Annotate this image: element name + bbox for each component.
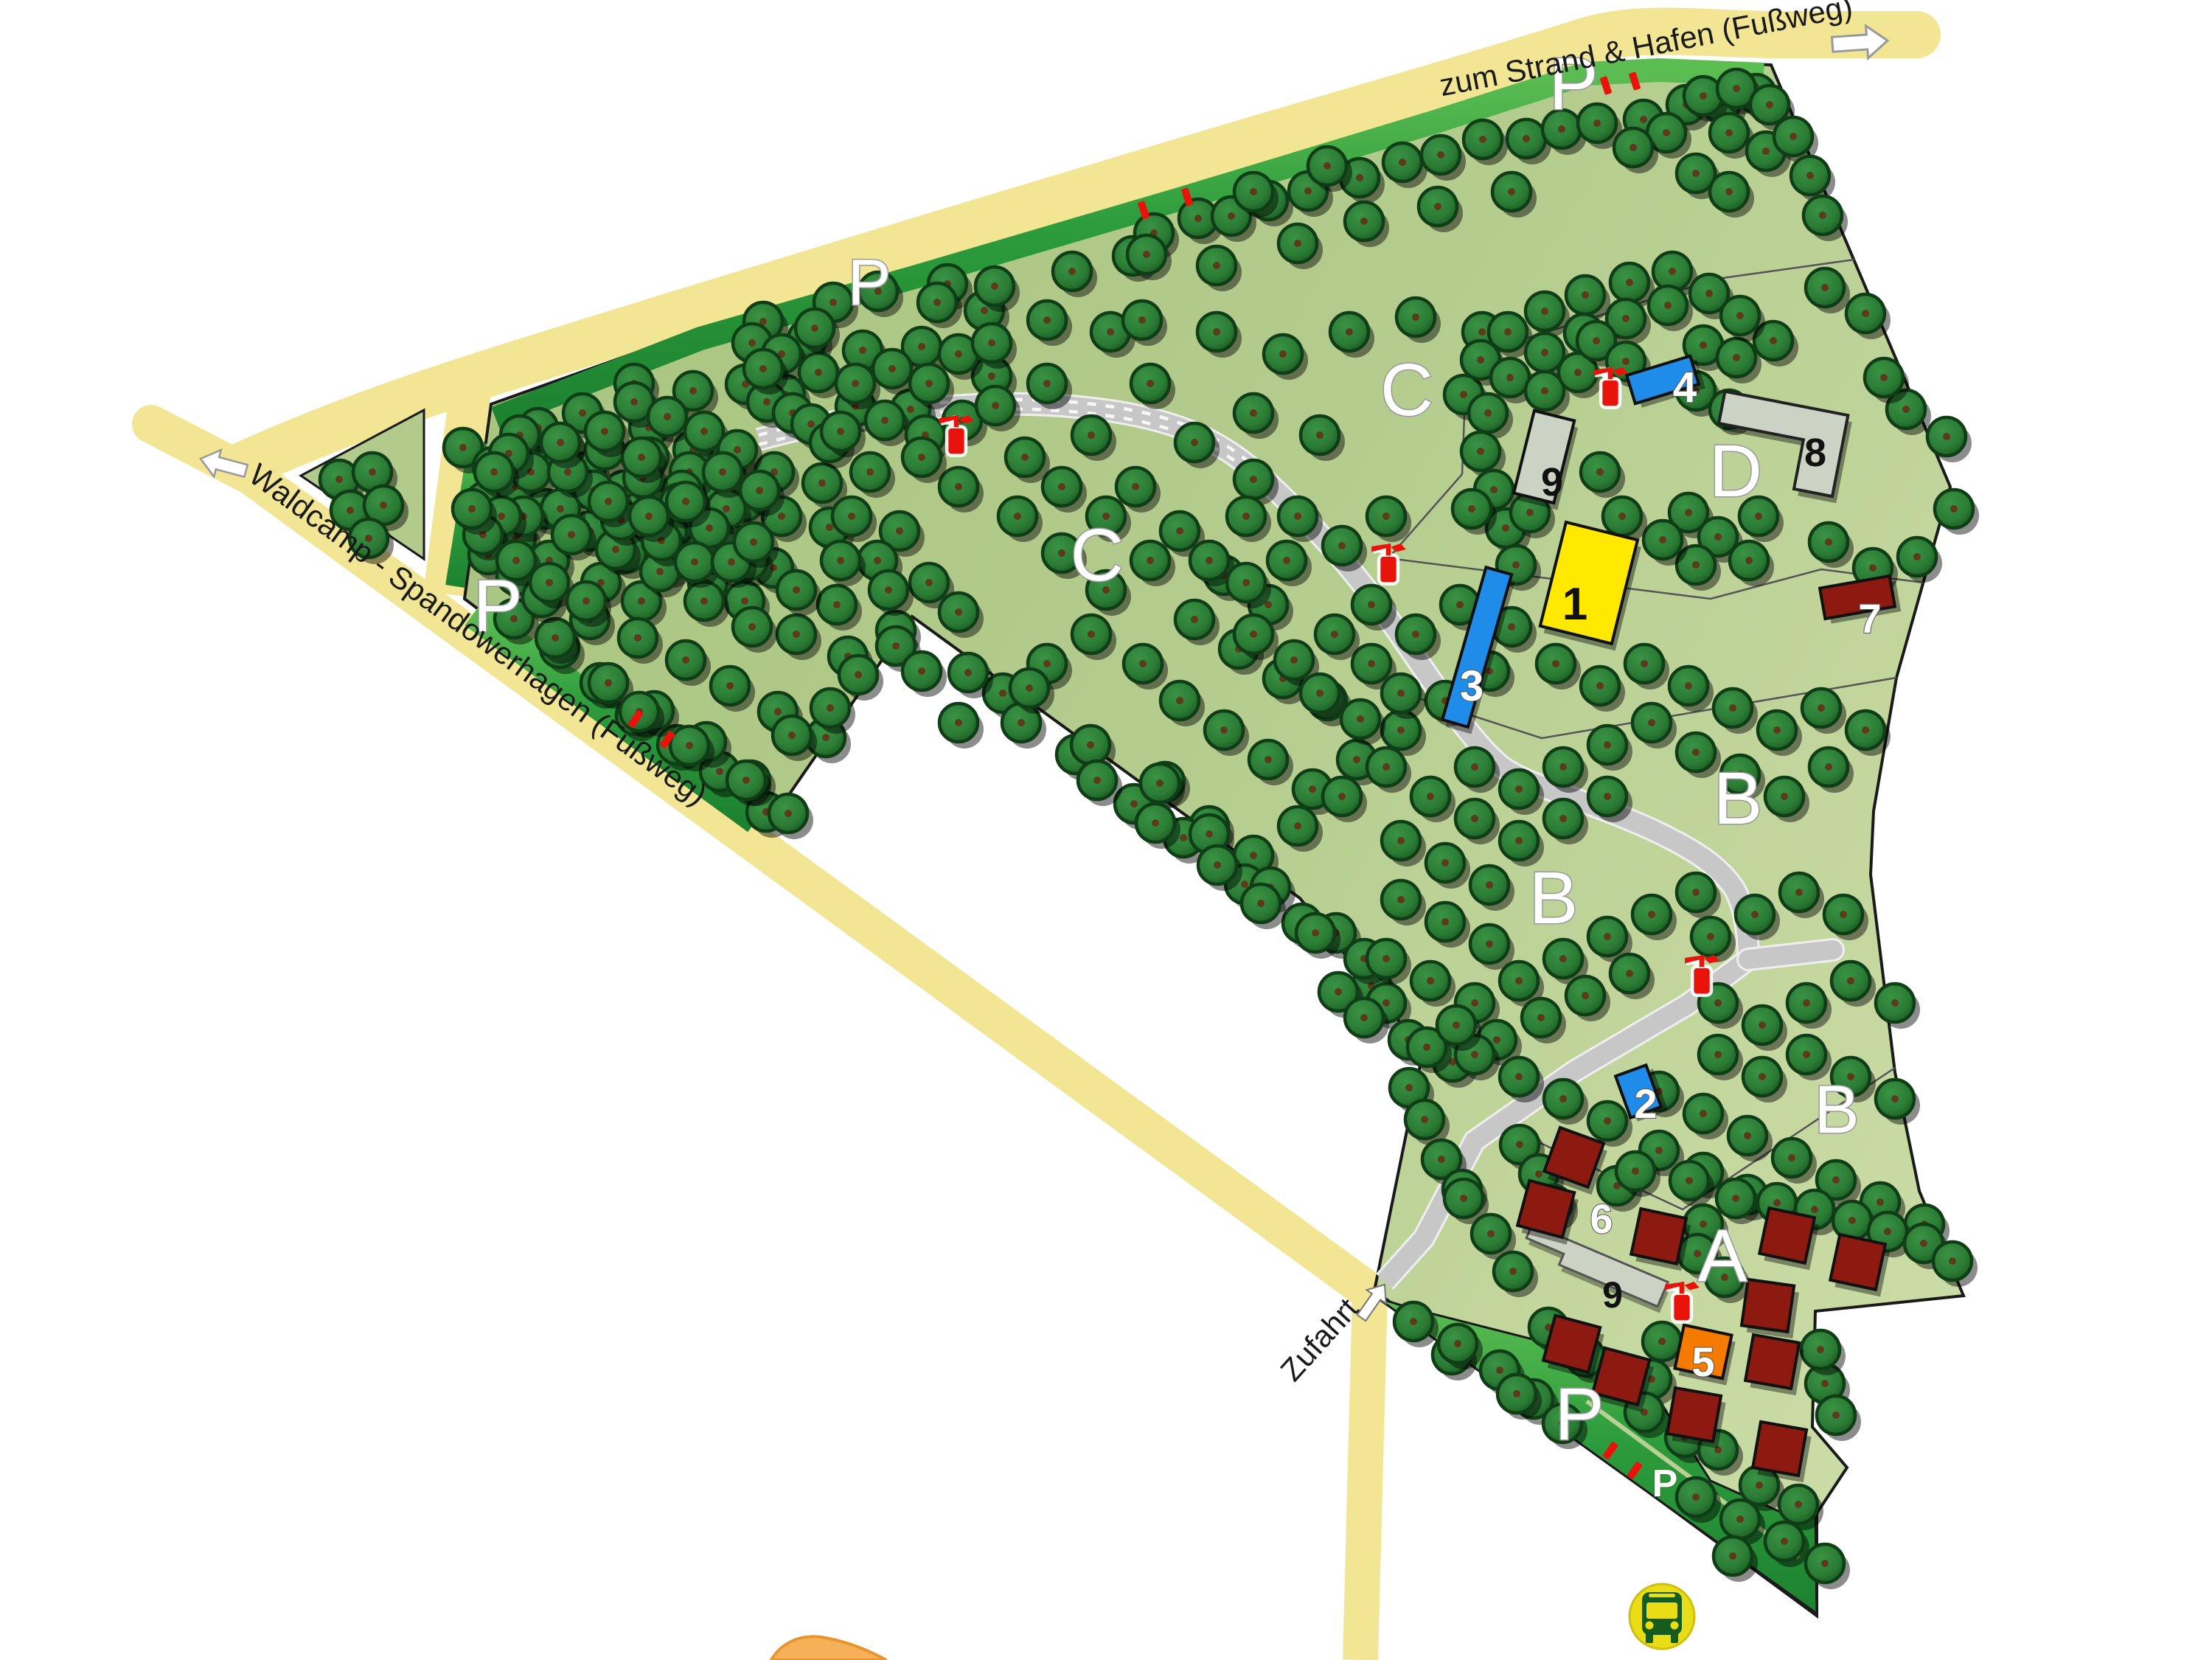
svg-text:A: A [1698,1215,1747,1297]
svg-text:2: 2 [1634,1080,1657,1127]
svg-text:6: 6 [1590,1195,1613,1242]
svg-text:B: B [1529,857,1579,940]
svg-text:4: 4 [1673,364,1697,411]
svg-text:8: 8 [1804,431,1826,475]
svg-text:C: C [1380,349,1433,431]
svg-text:7: 7 [1858,595,1881,642]
svg-text:5: 5 [1691,1338,1714,1385]
svg-text:C: C [1071,514,1124,597]
svg-text:P: P [1555,1373,1604,1456]
svg-text:9: 9 [1541,460,1563,504]
svg-text:3: 3 [1460,662,1484,710]
svg-text:P: P [1652,1462,1678,1505]
svg-text:1: 1 [1562,579,1587,630]
svg-text:D: D [1709,430,1762,513]
svg-text:P: P [848,246,891,319]
svg-text:9: 9 [1602,1274,1623,1316]
svg-text:B: B [1814,1072,1859,1147]
svg-text:B: B [1714,757,1763,840]
